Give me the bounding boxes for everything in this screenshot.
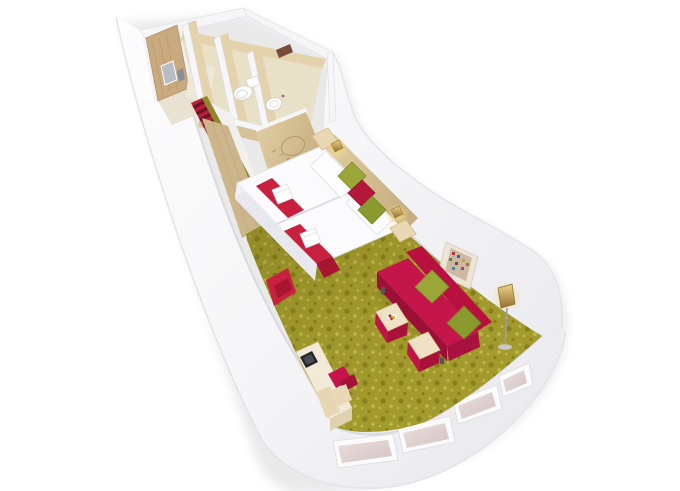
faucet bbox=[282, 95, 285, 98]
lamp-base bbox=[498, 344, 512, 350]
fruit bbox=[388, 314, 391, 317]
sofa-leg bbox=[440, 358, 444, 364]
fruit bbox=[390, 317, 393, 320]
cabin-floorplan-render bbox=[0, 0, 680, 491]
floorplan-canvas bbox=[0, 0, 680, 491]
fruit-bowl bbox=[387, 313, 398, 320]
lamp-shade bbox=[498, 284, 515, 308]
sofa-leg bbox=[381, 287, 385, 293]
